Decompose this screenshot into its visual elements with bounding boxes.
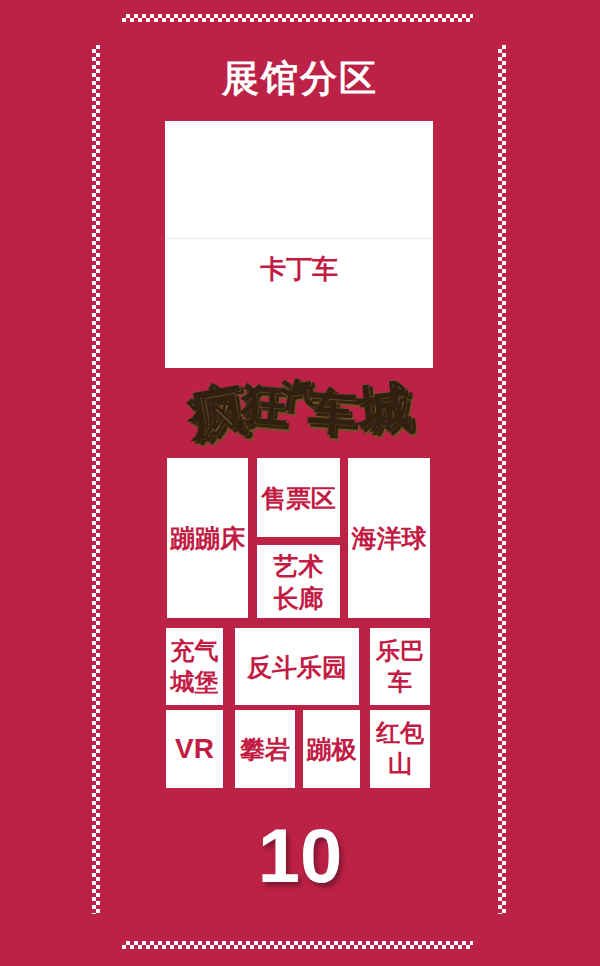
- zone-art-corridor: 艺术 长廊: [257, 545, 340, 618]
- zone-label: VR: [175, 731, 214, 767]
- zone-bungee: 蹦极: [303, 710, 360, 788]
- crazy-car-city-logo: 疯 狂 汽 车 城: [0, 374, 600, 446]
- zigzag-border-left: [92, 45, 100, 914]
- zone-red-packet-mountain: 红包 山: [370, 710, 430, 788]
- zone-inflatable-castle: 充气 城堡: [166, 628, 223, 705]
- zone-trampoline: 蹦蹦床: [167, 458, 248, 618]
- page-title: 展馆分区: [0, 59, 600, 100]
- zone-label: 乐巴 车: [376, 636, 424, 697]
- logo-char: 车: [307, 379, 358, 445]
- zone-label: 卡丁车: [260, 253, 338, 286]
- hall-number: 10: [0, 818, 600, 894]
- zone-ocean-ball-pool: 海洋球: [348, 458, 430, 618]
- zone-divider-line: [166, 238, 432, 239]
- zigzag-border-right: [498, 45, 506, 914]
- zone-label: 反斗乐园: [247, 651, 347, 683]
- zone-label: 海洋球: [352, 522, 427, 554]
- zone-label: 红包 山: [376, 718, 424, 779]
- zone-label: 攀岩: [240, 733, 290, 765]
- zone-karting: 卡丁车: [165, 121, 433, 368]
- zone-fandou-playground: 反斗乐园: [235, 628, 359, 705]
- zone-label: 售票区: [261, 482, 336, 514]
- zone-label: 艺术 长廊: [274, 550, 324, 614]
- exhibition-map-page: { "page": { "title": "展馆分区", "hall_numbe…: [0, 0, 600, 966]
- zigzag-border-top: [122, 14, 473, 22]
- zone-rock-climbing: 攀岩: [235, 710, 295, 788]
- zone-label: 蹦极: [307, 733, 357, 765]
- zone-vr: VR: [166, 710, 223, 788]
- zone-ticket-office: 售票区: [257, 458, 340, 537]
- zigzag-border-bottom: [122, 941, 473, 949]
- zone-label: 充气 城堡: [171, 636, 219, 697]
- zone-fun-bus: 乐巴 车: [370, 628, 430, 705]
- logo-char: 城: [355, 371, 414, 446]
- zone-label: 蹦蹦床: [170, 522, 245, 554]
